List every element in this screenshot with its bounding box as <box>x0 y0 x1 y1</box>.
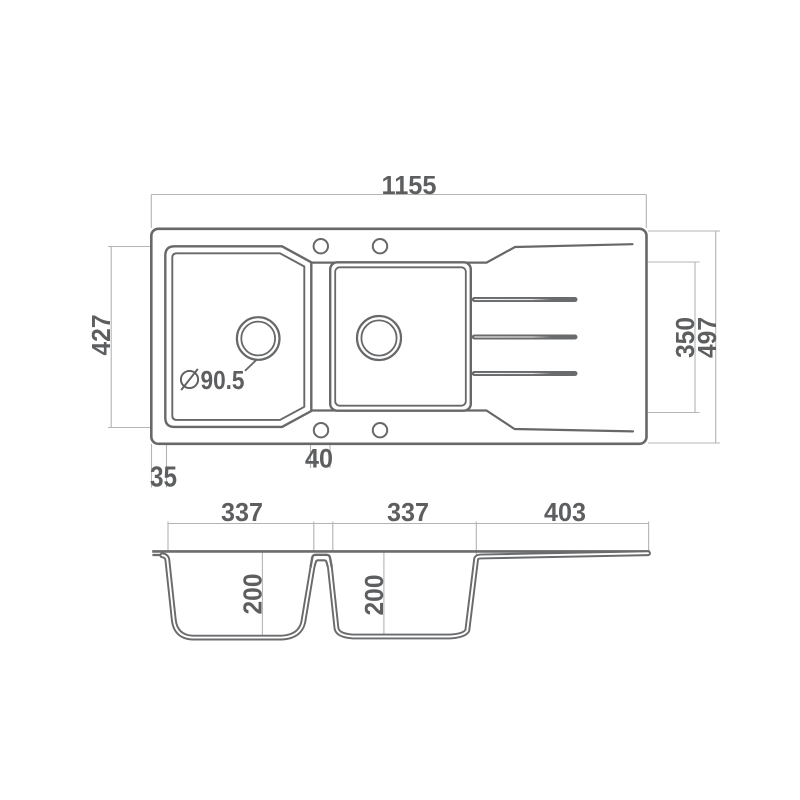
svg-text:35: 35 <box>150 462 177 494</box>
svg-text:497: 497 <box>692 317 722 358</box>
svg-text:200: 200 <box>359 575 389 616</box>
svg-text:200: 200 <box>238 574 268 615</box>
svg-text:427: 427 <box>86 315 116 356</box>
svg-text:40: 40 <box>305 444 333 474</box>
svg-text:1155: 1155 <box>382 170 437 200</box>
svg-text:90.5: 90.5 <box>201 365 245 395</box>
svg-text:337: 337 <box>221 497 263 527</box>
svg-text:403: 403 <box>544 497 586 527</box>
svg-text:337: 337 <box>387 497 429 527</box>
